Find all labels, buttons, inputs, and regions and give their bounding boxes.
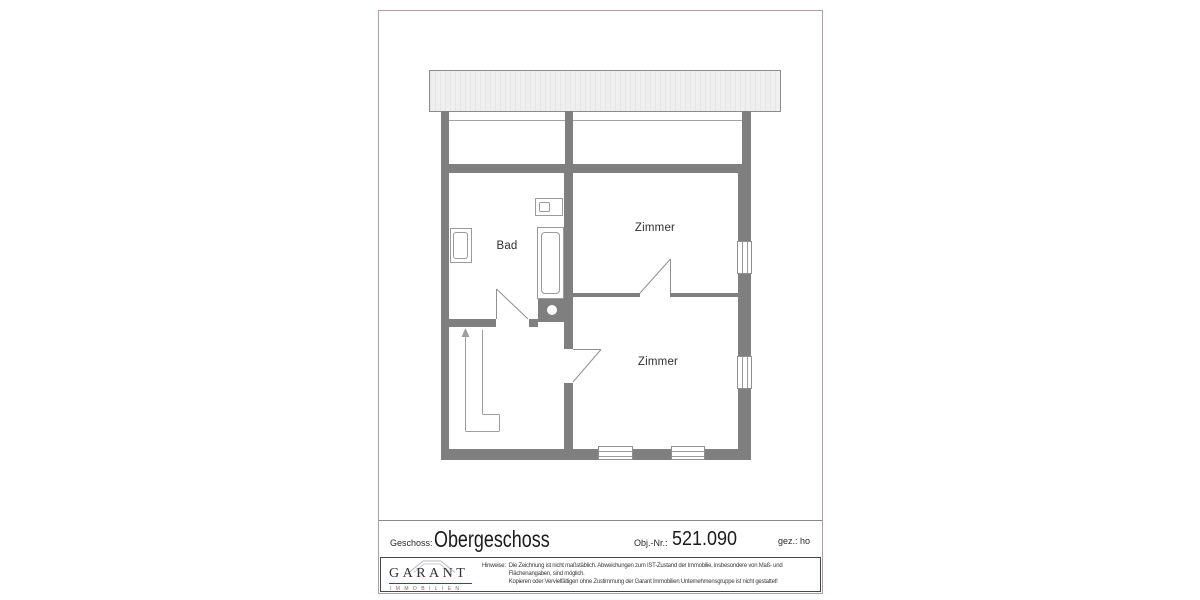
garant-logo: GARANT IMMOBILIEN [389, 560, 479, 590]
object-number-label: Obj.-Nr.: [634, 538, 668, 548]
plan-sheet: Bad Zimmer Zimmer Geschoss: Obergeschoss… [378, 10, 823, 594]
footer: GARANT IMMOBILIEN Hinweise: Die Zeichnun… [380, 557, 821, 592]
room-label-bad: Bad [496, 240, 517, 252]
door-swing-zimmer-lower [573, 350, 601, 383]
floor-plan: Bad Zimmer Zimmer [379, 11, 822, 520]
title-block: Geschoss: Obergeschoss Obj.-Nr.: 521.090… [379, 520, 822, 557]
door-and-stair-lines [379, 11, 822, 520]
room-label-zimmer-lower: Zimmer [638, 356, 678, 368]
disclaimer-line: Flächenangaben, sind möglich. [509, 570, 783, 578]
door-swing-bad [497, 289, 529, 319]
door-swing-zimmer-upper [640, 259, 671, 293]
geschoss-label: Geschoss: [390, 538, 433, 548]
disclaimer: Hinweise: Die Zeichnung ist nicht maßstä… [482, 562, 818, 586]
geschoss-value: Obergeschoss [434, 527, 550, 551]
object-number-value: 521.090 [672, 529, 737, 550]
logo-divider [389, 583, 472, 584]
logo-wordmark: GARANT [389, 567, 468, 581]
stairs-direction-arrow-icon [462, 328, 470, 337]
disclaimer-label: Hinweise: [482, 562, 506, 586]
disclaimer-line: Kopieren oder Vervielfältigen ohne Zusti… [509, 578, 783, 586]
logo-subtitle: IMMOBILIEN [390, 586, 463, 592]
disclaimer-line: Die Zeichnung ist nicht maßstäblich. Abw… [509, 562, 783, 570]
stairs-outline [466, 330, 500, 432]
drawn-by-label: gez.: ho [778, 536, 810, 546]
room-label-zimmer-upper: Zimmer [635, 222, 675, 234]
